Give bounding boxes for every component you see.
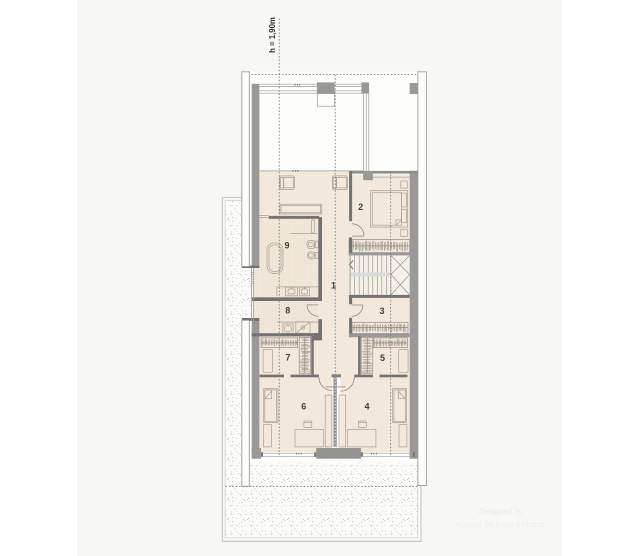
svg-text:HOUSE DESIGN STUDIO: HOUSE DESIGN STUDIO [456,522,546,529]
svg-text:5: 5 [380,353,385,363]
svg-text:4: 4 [364,401,369,411]
svg-text:8: 8 [285,306,290,316]
svg-text:1: 1 [331,281,336,291]
svg-text:h = 1,90m: h = 1,90m [268,17,277,53]
svg-text:2: 2 [358,202,363,212]
svg-text:Designed by: Designed by [478,506,523,516]
svg-text:6: 6 [301,401,306,411]
svg-text:3: 3 [379,306,384,316]
svg-text:9: 9 [284,241,289,251]
svg-text:7: 7 [285,353,290,363]
